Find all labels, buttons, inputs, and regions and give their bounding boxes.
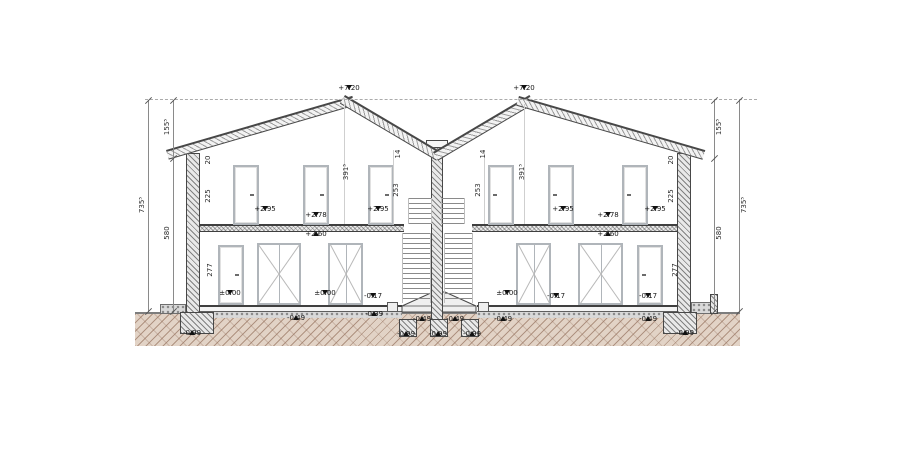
level-marker-arrow-icon [652,206,658,211]
section-drawing: +7.20+7.20+2.95+2.78+2.95+2.60+2.95+2.78… [0,0,920,453]
dimension-label: 580 [163,226,171,239]
dimension-label: 155⁵ [715,119,723,135]
level-marker-arrow-icon [370,293,376,298]
level-marker-value: -0.99 [429,331,447,338]
dimension-label: 253 [392,183,400,196]
dimension-label: 391⁵ [518,164,526,180]
level-marker-value: -0.39 [365,311,383,318]
level-marker-value: -0.49 [413,316,431,323]
level-marker-value: -0.49 [639,316,657,323]
dimension-label: 391⁵ [342,164,350,180]
level-marker-value: +2.60 [305,231,326,238]
dimension-label: 14 [479,150,487,159]
level-marker-arrow-icon [645,293,651,298]
dimension-label: 225 [204,189,212,202]
level-marker-arrow-icon [560,206,566,211]
level-marker-value: -0.99 [463,331,481,338]
level-marker-value: -0.99 [676,330,694,337]
level-marker-arrow-icon [521,85,527,90]
level-marker-value: -0.49 [494,316,512,323]
level-marker-arrow-icon [227,290,233,295]
dimension-label: 277 [206,263,214,276]
dimension-label: 735⁵ [740,197,748,213]
level-marker-value: +2.60 [597,231,618,238]
dimension-label: 155⁵ [163,119,171,135]
level-marker-arrow-icon [375,206,381,211]
level-marker-value: -0.99 [183,330,201,337]
dimension-label: 20 [667,156,675,165]
level-marker-value: -0.99 [397,331,415,338]
level-marker-arrow-icon [346,85,352,90]
dimension-label: 735⁵ [138,197,146,213]
dimension-label: 20 [204,156,212,165]
level-marker-value: -0.49 [287,315,305,322]
dimension-label: 225 [667,189,675,202]
dimension-label: 580 [715,226,723,239]
annotation-layer: +7.20+7.20+2.95+2.78+2.95+2.60+2.95+2.78… [0,0,920,453]
dimension-label: 277 [671,263,679,276]
level-marker-arrow-icon [313,212,319,217]
level-marker-value: -0.49 [446,316,464,323]
dimension-label: 253 [474,183,482,196]
level-marker-arrow-icon [262,206,268,211]
level-marker-arrow-icon [322,290,328,295]
dimension-label: 14 [394,150,402,159]
level-marker-arrow-icon [504,290,510,295]
level-marker-arrow-icon [605,212,611,217]
level-marker-arrow-icon [553,293,559,298]
